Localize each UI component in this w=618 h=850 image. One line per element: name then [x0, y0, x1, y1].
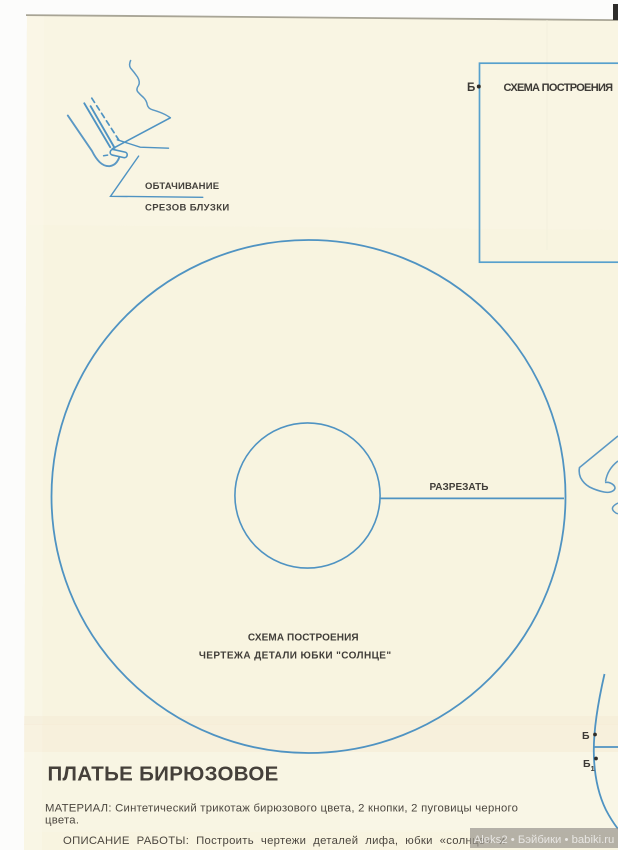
- svg-text:СРЕЗОВ БЛУЗКИ: СРЕЗОВ БЛУЗКИ: [145, 203, 230, 214]
- svg-text:МАТЕРИАЛ: Синтетический трикот: МАТЕРИАЛ: Синтетический трикотаж бирюзов…: [45, 803, 518, 815]
- svg-text:ОБТАЧИВАНИЕ: ОБТАЧИВАНИЕ: [145, 181, 219, 192]
- svg-text:1: 1: [591, 764, 595, 773]
- svg-text:ОПИСАНИЕ РАБОТЫ: Построить чер: ОПИСАНИЕ РАБОТЫ: Построить чертежи детал…: [63, 835, 505, 847]
- svg-text:Aleks2 • Бэйбики • babiki.ru: Aleks2 • Бэйбики • babiki.ru: [474, 834, 615, 846]
- svg-text:ЧЕРТЕЖА ДЕТАЛИ ЮБКИ "СОЛНЦЕ": ЧЕРТЕЖА ДЕТАЛИ ЮБКИ "СОЛНЦЕ": [199, 651, 392, 662]
- svg-text:Б: Б: [582, 730, 590, 742]
- svg-text:СХЕМА ПОСТРОЕНИЯ: СХЕМА ПОСТРОЕНИЯ: [248, 633, 359, 644]
- svg-text:СХЕМА ПОСТРОЕНИЯ: СХЕМА ПОСТРОЕНИЯ: [504, 82, 614, 94]
- svg-text:Б: Б: [467, 82, 475, 94]
- svg-text:цвета.: цвета.: [45, 815, 79, 827]
- svg-text:ПЛАТЬЕ БИРЮЗОВОЕ: ПЛАТЬЕ БИРЮЗОВОЕ: [48, 763, 279, 786]
- svg-text:РАЗРЕЗАТЬ: РАЗРЕЗАТЬ: [430, 482, 489, 493]
